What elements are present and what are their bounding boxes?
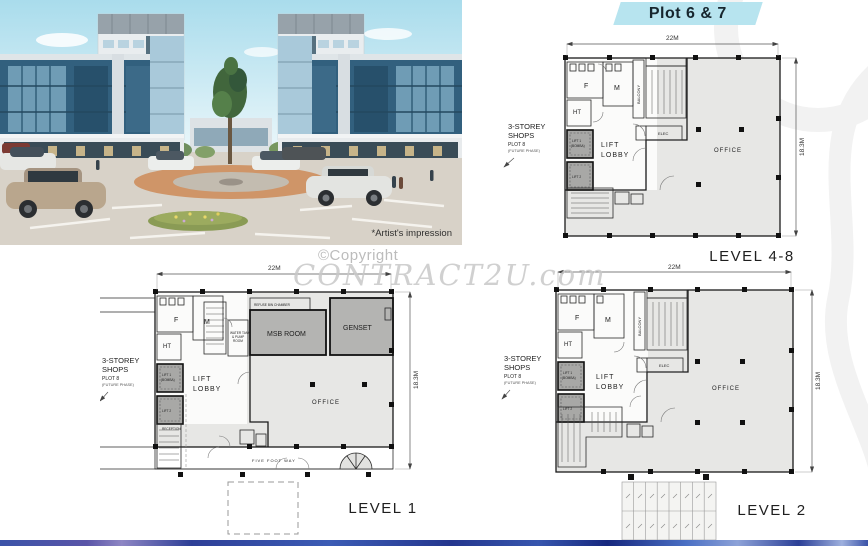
svg-text:SHOPS: SHOPS [504, 363, 530, 372]
side-label-future-shops: 3-STOREY SHOPS PLOT 8 (FUTURE PHASE) [504, 122, 545, 167]
svg-text:(BOMBA): (BOMBA) [562, 376, 576, 380]
svg-text:3-STOREY: 3-STOREY [504, 354, 541, 363]
svg-text:F: F [575, 315, 579, 322]
cloud [364, 28, 412, 40]
svg-text:LIFT 2: LIFT 2 [563, 407, 572, 411]
svg-text:F: F [584, 83, 588, 90]
five-foot-way-label: FIVE FOOT WAY [252, 458, 296, 463]
svg-text:LOBBY: LOBBY [601, 152, 629, 159]
dimension-height: 18.3M [795, 290, 822, 472]
flower-median [148, 211, 248, 231]
dimension-height: 18.3M [782, 58, 806, 236]
svg-text:M: M [204, 319, 210, 326]
svg-text:F: F [174, 317, 178, 324]
svg-text:3-STOREY: 3-STOREY [102, 356, 139, 365]
swoosh-wave [836, 70, 868, 470]
artist-impression-caption: *Artist's impression [372, 228, 452, 239]
plot-banner-label: Plot 6 & 7 [649, 5, 727, 23]
svg-text:18.3M: 18.3M [413, 371, 420, 389]
dimension-width: 22M [157, 265, 391, 290]
genset-room: GENSET [330, 298, 393, 355]
svg-text:18.3M: 18.3M [815, 372, 822, 390]
plot-banner: Plot 6 & 7 [613, 2, 762, 25]
svg-text:LOBBY: LOBBY [193, 386, 221, 393]
lift-1: LIFT 1 (BOMBA) [567, 130, 593, 158]
dimension-height: 18.3M [395, 292, 420, 469]
svg-text:ELEC: ELEC [659, 363, 670, 368]
dimension-width: 22M [567, 35, 778, 56]
svg-text:ROOM: ROOM [233, 339, 243, 343]
artist-impression-render: *Artist's impression [0, 0, 462, 245]
svg-text:M: M [614, 85, 620, 92]
svg-text:HT: HT [163, 344, 171, 350]
svg-text:22M: 22M [666, 35, 679, 42]
ramp-fan [340, 453, 372, 469]
svg-text:(BOMBA): (BOMBA) [571, 144, 585, 148]
svg-text:LIFT: LIFT [596, 374, 614, 381]
svg-text:REFUSE BIN CHAMBER: REFUSE BIN CHAMBER [254, 303, 291, 307]
svg-text:LIFT: LIFT [601, 142, 619, 149]
svg-text:18.3M: 18.3M [799, 138, 806, 156]
svg-text:LIFT: LIFT [193, 376, 211, 383]
svg-text:(FUTURE PHASE): (FUTURE PHASE) [102, 383, 135, 387]
svg-text:BALCONY: BALCONY [636, 85, 641, 104]
svg-text:LIFT 2: LIFT 2 [572, 175, 581, 179]
office-label: OFFICE [714, 148, 742, 154]
svg-text:ELEC: ELEC [658, 131, 669, 136]
floor-plan-level-4-8: F M BALCONY HT [500, 30, 822, 270]
msb-room: MSB ROOM [250, 310, 326, 355]
svg-text:LOBBY: LOBBY [596, 384, 624, 391]
svg-text:(FUTURE PHASE): (FUTURE PHASE) [508, 149, 541, 153]
dimension-width: 22M [558, 264, 791, 288]
svg-text:(BOMBA): (BOMBA) [161, 378, 175, 382]
dashed-canopy-outline [228, 482, 298, 534]
brochure-page: *Artist's impression Plot 6 & 7 [0, 0, 868, 546]
svg-text:LIFT 1: LIFT 1 [572, 139, 581, 143]
svg-text:3-STOREY: 3-STOREY [508, 122, 545, 131]
svg-text:22M: 22M [268, 265, 281, 272]
svg-text:BALCONY: BALCONY [637, 317, 642, 336]
svg-text:HT: HT [564, 342, 572, 348]
footer-accent-bar [0, 540, 868, 546]
svg-text:LIFT 1: LIFT 1 [162, 373, 171, 377]
level-2-title: LEVEL 2 [737, 502, 806, 519]
lift-1: LIFT 1 (BOMBA) [558, 362, 584, 390]
svg-text:LIFT 1: LIFT 1 [563, 371, 572, 375]
level-1-title: LEVEL 1 [348, 500, 417, 517]
parking-grid [622, 482, 716, 540]
svg-text:M: M [605, 317, 611, 324]
floor-plan-level-1: REFUSE BIN CHAMBER MSB ROOM GENSET WATER… [100, 262, 440, 546]
cloud [36, 33, 88, 47]
svg-text:22M: 22M [668, 264, 681, 271]
side-label-future-shops: 3-STOREY SHOPS PLOT 8 (FUTURE PHASE) [502, 354, 541, 399]
reception-label: RECEPTION [162, 427, 181, 431]
svg-text:SHOPS: SHOPS [102, 365, 128, 374]
lift-2: LIFT 2 [157, 396, 183, 424]
svg-text:(FUTURE PHASE): (FUTURE PHASE) [504, 381, 537, 385]
svg-text:HT: HT [573, 110, 581, 116]
svg-text:LIFT 2: LIFT 2 [162, 409, 171, 413]
office-label: OFFICE [312, 400, 340, 406]
svg-text:PLOT 8: PLOT 8 [504, 374, 521, 380]
svg-text:MSB ROOM: MSB ROOM [267, 331, 306, 338]
svg-text:PLOT 8: PLOT 8 [102, 376, 119, 382]
roundabout [134, 165, 328, 199]
background-tree [195, 146, 215, 158]
cloud [244, 47, 280, 57]
lift-1: LIFT 1 (BOMBA) [157, 364, 183, 392]
car-dark-right [282, 147, 326, 160]
svg-text:GENSET: GENSET [343, 325, 373, 332]
side-label-future-shops: 3-STOREY SHOPS PLOT 8 (FUTURE PHASE) [100, 356, 139, 401]
floor-plan-level-2: F M BALCONY HT [500, 262, 840, 546]
svg-text:SHOPS: SHOPS [508, 131, 534, 140]
office-label: OFFICE [712, 386, 740, 392]
lift-2: LIFT 2 [567, 162, 593, 190]
svg-text:PLOT 8: PLOT 8 [508, 142, 525, 148]
